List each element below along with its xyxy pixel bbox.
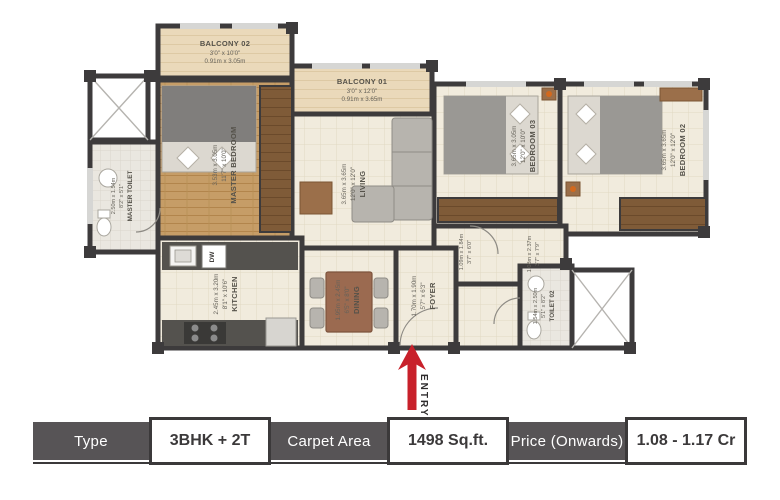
svg-text:MASTER TOILET: MASTER TOILET xyxy=(127,171,134,222)
svg-text:6'5" x 8'0": 6'5" x 8'0" xyxy=(344,286,351,313)
master-bed-blanket xyxy=(162,86,256,142)
svg-text:BALCONY 01: BALCONY 01 xyxy=(337,77,387,86)
svg-text:1.09m x 1.84m: 1.09m x 1.84m xyxy=(459,233,465,270)
bedroom-02-blanket xyxy=(600,96,662,174)
svg-text:11'7" x 10'0": 11'7" x 10'0" xyxy=(221,148,228,181)
kitchen-label: 2.45m x 3.20m 8'1" x 10'6" KITCHEN xyxy=(213,274,239,315)
spec-type-value: 3BHK + 2T xyxy=(149,417,271,465)
svg-text:1.70m x 1.90m: 1.70m x 1.90m xyxy=(411,276,418,317)
dining-chair xyxy=(310,278,324,298)
bedroom-03-blanket xyxy=(444,96,506,174)
svg-text:0.91m x 3.65m: 0.91m x 3.65m xyxy=(342,96,383,103)
bedroom-03-wardrobe xyxy=(438,198,558,222)
svg-text:2.50m x 1.54m: 2.50m x 1.54m xyxy=(111,177,117,214)
svg-text:LIVING: LIVING xyxy=(358,171,367,198)
svg-text:1.08m x 2.37m: 1.08m x 2.37m xyxy=(527,235,533,272)
wc-tank xyxy=(98,210,110,218)
svg-text:12'0" x 12'0": 12'0" x 12'0" xyxy=(350,167,357,201)
svg-text:8'2" x 5'1": 8'2" x 5'1" xyxy=(119,184,125,208)
dining-chair xyxy=(310,308,324,328)
dining-chair xyxy=(374,278,388,298)
svg-text:3.53m x 3.05m: 3.53m x 3.05m xyxy=(212,145,219,186)
dining-chair xyxy=(374,308,388,328)
svg-text:12'0" x 10'0": 12'0" x 10'0" xyxy=(520,129,527,163)
dresser xyxy=(660,88,702,101)
svg-text:3.65m x 3.65m: 3.65m x 3.65m xyxy=(341,164,348,205)
svg-text:5'1" x 8'2": 5'1" x 8'2" xyxy=(541,294,547,318)
svg-text:5'7" x 6'3": 5'7" x 6'3" xyxy=(420,282,427,309)
svg-text:KITCHEN: KITCHEN xyxy=(230,276,239,311)
hob xyxy=(184,322,226,344)
master-wardrobe xyxy=(260,86,292,232)
svg-text:3'7" x 6'0": 3'7" x 6'0" xyxy=(467,240,473,264)
spec-price-label: Price (Onwards) xyxy=(509,422,625,460)
svg-text:8'1" x 10'6": 8'1" x 10'6" xyxy=(222,279,229,310)
entry-label: ENTRY xyxy=(418,374,429,418)
svg-text:3.65m x 3.65m: 3.65m x 3.65m xyxy=(661,130,668,171)
dishwasher-label: DW xyxy=(209,251,216,263)
svg-text:3'0" x 12'0": 3'0" x 12'0" xyxy=(347,88,378,95)
svg-text:3'0" x 10'0": 3'0" x 10'0" xyxy=(210,50,241,57)
svg-text:1.54m x 2.50m: 1.54m x 2.50m xyxy=(533,287,539,324)
spec-type-label: Type xyxy=(33,422,149,460)
svg-text:0.91m x 3.05m: 0.91m x 3.05m xyxy=(205,58,246,65)
master-toilet-room xyxy=(90,142,160,252)
svg-text:12'0" x 12'0": 12'0" x 12'0" xyxy=(670,133,677,167)
svg-text:BALCONY 02: BALCONY 02 xyxy=(200,39,250,48)
svg-text:MASTER BEDROOM: MASTER BEDROOM xyxy=(229,126,238,203)
entry-arrow-tail xyxy=(408,360,417,410)
sofa xyxy=(392,118,432,220)
svg-text:3'7" x 7'9": 3'7" x 7'9" xyxy=(535,242,541,266)
entry-marker: ENTRY xyxy=(398,344,429,418)
svg-text:TOILET 02: TOILET 02 xyxy=(549,290,556,322)
svg-text:FOYER: FOYER xyxy=(428,282,437,310)
spec-price-value: 1.08 - 1.17 Cr xyxy=(625,417,747,465)
side-table xyxy=(300,182,332,214)
passage-lower-area xyxy=(456,284,520,348)
svg-text:3.65m x 3.05m: 3.65m x 3.05m xyxy=(511,126,518,167)
svg-text:DINING: DINING xyxy=(352,286,361,314)
svg-text:BEDROOM 03: BEDROOM 03 xyxy=(528,120,537,173)
floor-plan-page: BALCONY 02 3'0" x 10'0" 0.91m x 3.05m BA… xyxy=(0,0,780,500)
svg-text:BEDROOM 02: BEDROOM 02 xyxy=(678,124,687,177)
svg-text:2.45m x 3.20m: 2.45m x 3.20m xyxy=(213,274,220,315)
wc xyxy=(97,218,111,236)
lamp xyxy=(570,186,576,192)
spec-carpet-value: 1498 Sq.ft. xyxy=(387,417,509,465)
spec-carpet-label: Carpet Area xyxy=(271,422,387,460)
bedroom-02-wardrobe xyxy=(620,198,706,230)
svg-text:1.95m x 2.45m: 1.95m x 2.45m xyxy=(335,280,342,321)
lamp xyxy=(546,91,552,97)
spec-table: Type 3BHK + 2T Carpet Area 1498 Sq.ft. P… xyxy=(33,417,747,465)
refrigerator xyxy=(266,318,296,346)
